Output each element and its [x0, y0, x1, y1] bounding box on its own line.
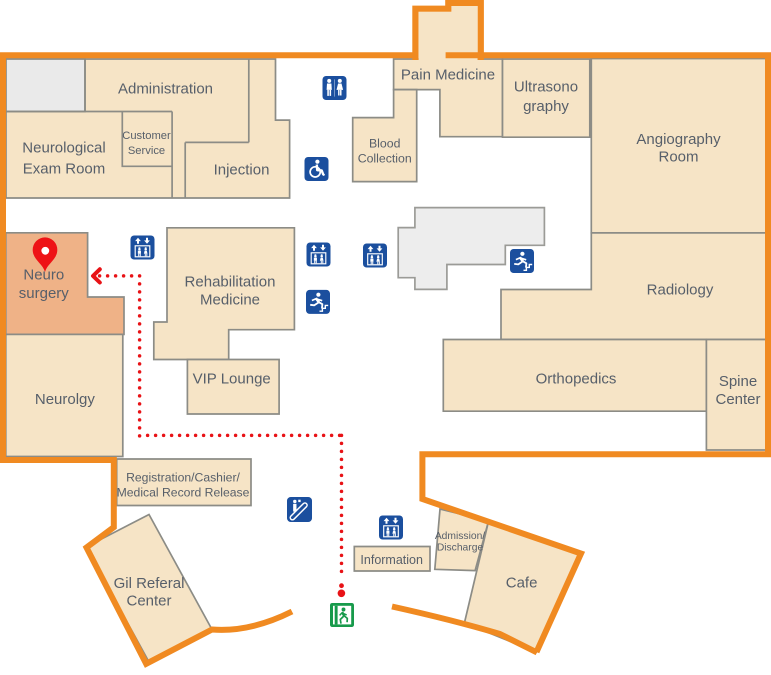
- svg-text:Spine: Spine: [719, 373, 757, 390]
- svg-text:Center: Center: [715, 391, 760, 408]
- svg-text:Admission/: Admission/: [435, 531, 485, 542]
- svg-text:graphy: graphy: [523, 98, 569, 115]
- svg-text:Medicine: Medicine: [200, 292, 260, 309]
- svg-text:Center: Center: [126, 593, 171, 610]
- svg-text:Medical Record Release: Medical Record Release: [117, 485, 250, 499]
- svg-text:Radiology: Radiology: [647, 282, 714, 299]
- svg-text:Collection: Collection: [358, 152, 412, 166]
- svg-text:surgery: surgery: [19, 285, 70, 302]
- svg-text:Pain Medicine: Pain Medicine: [401, 67, 495, 84]
- svg-text:Information: Information: [360, 553, 423, 567]
- svg-text:Rehabilitation: Rehabilitation: [185, 274, 276, 291]
- svg-text:Discharge: Discharge: [437, 543, 484, 554]
- svg-text:Injection: Injection: [214, 162, 270, 179]
- svg-text:Neurological: Neurological: [22, 140, 105, 157]
- svg-text:Orthopedics: Orthopedics: [536, 371, 617, 388]
- svg-text:Neuro: Neuro: [23, 267, 64, 284]
- svg-text:Gil Referal: Gil Referal: [114, 575, 185, 592]
- svg-text:Angiography: Angiography: [636, 131, 721, 148]
- svg-text:VIP Lounge: VIP Lounge: [193, 371, 271, 388]
- svg-text:Neurolgy: Neurolgy: [35, 391, 96, 408]
- svg-text:Cafe: Cafe: [506, 575, 538, 592]
- svg-text:Customer: Customer: [122, 130, 171, 142]
- svg-text:Service: Service: [128, 145, 165, 157]
- svg-text:Administration: Administration: [118, 81, 213, 98]
- svg-text:Blood: Blood: [369, 137, 401, 151]
- svg-text:Registration/Cashier/: Registration/Cashier/: [126, 470, 240, 484]
- svg-text:Room: Room: [658, 149, 698, 166]
- svg-text:Ultrasono: Ultrasono: [514, 79, 578, 96]
- svg-text:Exam Room: Exam Room: [23, 161, 106, 178]
